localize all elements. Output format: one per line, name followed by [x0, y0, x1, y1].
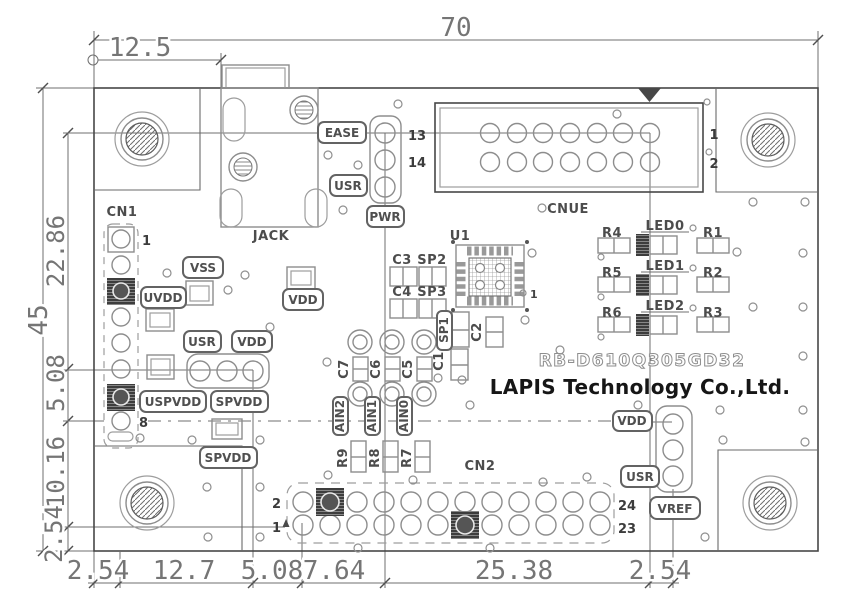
- cnue-pin13: 13: [408, 129, 426, 144]
- label-usr-right: USR: [626, 470, 654, 484]
- dim-bottom-seg2: 12.7: [153, 556, 216, 586]
- cn1-pin1: 1: [142, 234, 151, 249]
- board-model: RB-D610Q305GD32: [539, 351, 746, 371]
- cn2-label: CN2: [465, 459, 496, 474]
- cn2-pin2: 2: [272, 497, 281, 512]
- label-uspvdd: USPVDD: [145, 395, 201, 409]
- drawing-canvas: 70 12.5 45 22.86 5.08 10.16 2.54 2.54 12…: [0, 0, 850, 590]
- ref-r4: R4: [602, 226, 622, 241]
- label-vdd-b: VDD: [237, 335, 266, 349]
- u1-label: U1: [450, 229, 471, 244]
- cn2-pin1: 1: [272, 521, 281, 536]
- testpoint-circles: [348, 330, 436, 406]
- ref-r6: R6: [602, 306, 622, 321]
- dim-bottom-seg5: 25.38: [475, 556, 553, 586]
- label-sp1: SP1: [437, 317, 451, 343]
- ref-led0: LED0: [645, 219, 684, 234]
- label-spvdd-a: SPVDD: [216, 395, 263, 409]
- usr-vdd-header: [187, 354, 269, 388]
- label-usr-mid: USR: [188, 335, 216, 349]
- label-ain0: AIN0: [397, 400, 411, 432]
- cnue-pin14: 14: [408, 156, 426, 171]
- label-vdd-a: VDD: [288, 293, 317, 307]
- dim-left-seg4: 2.54: [40, 505, 68, 563]
- jack-label: JACK: [252, 229, 290, 244]
- cnue-pin1: 1: [709, 128, 718, 143]
- mounting-hole-top-left: [115, 112, 169, 166]
- label-spvdd-b: SPVDD: [205, 451, 252, 465]
- ref-r2: R2: [703, 266, 723, 281]
- ref-led1: LED1: [645, 259, 684, 274]
- ref-c5: C5: [401, 359, 416, 379]
- cn2-pin23: 23: [618, 522, 636, 537]
- dim-left-seg2: 5.08: [42, 354, 70, 412]
- dim-left-seg1: 22.86: [42, 215, 70, 287]
- label-pwr: PWR: [369, 210, 400, 224]
- pcb-dimension-drawing: 70 12.5 45 22.86 5.08 10.16 2.54 2.54 12…: [0, 0, 850, 590]
- ref-c3: C3: [392, 253, 412, 268]
- dim-bottom-seg3: 5.08: [241, 556, 304, 586]
- branding: RB-D610Q305GD32 LAPIS Technology Co.,Ltd…: [490, 351, 791, 399]
- dim-board-height: 45: [24, 304, 54, 335]
- ref-r3: R3: [703, 306, 723, 321]
- ref-r5: R5: [602, 266, 622, 281]
- ref-r9: R9: [336, 448, 351, 468]
- ref-sp2: SP2: [417, 253, 446, 268]
- connector-cnue: 13 14 1 2 CNUE: [408, 88, 719, 217]
- ref-c6: C6: [369, 359, 384, 379]
- label-usr-top: USR: [334, 179, 362, 193]
- cn1-label: CN1: [107, 205, 138, 220]
- label-uvdd: UVDD: [144, 291, 183, 305]
- ref-r8: R8: [368, 448, 383, 468]
- ref-c7: C7: [337, 359, 352, 379]
- u1-pin1: 1: [530, 288, 538, 301]
- ref-sp3: SP3: [417, 285, 446, 300]
- ref-c1: C1: [432, 351, 447, 371]
- dim-bottom-seg4: 7.64: [303, 556, 366, 586]
- cnue-pin2: 2: [709, 157, 718, 172]
- led-resistor-array: R4 LED0 R1 R5 LED1 R2 R6 LED2 R3: [598, 219, 729, 336]
- dim-bottom-seg1: 2.54: [67, 556, 130, 586]
- ref-c2: C2: [470, 322, 485, 342]
- cnue-label: CNUE: [547, 202, 589, 217]
- dim-left-seg3: 10.16: [42, 436, 70, 508]
- ref-c4: C4: [392, 285, 412, 300]
- ref-led2: LED2: [645, 299, 684, 314]
- label-ease: EASE: [325, 126, 359, 140]
- mounting-hole-bottom-left: [120, 476, 174, 530]
- pin1-triangle-marker: [638, 88, 661, 102]
- cn2-pin1-arrow: [283, 519, 290, 527]
- ref-r7: R7: [400, 448, 415, 468]
- label-vdd-right: VDD: [617, 414, 646, 428]
- label-ain2: AIN2: [333, 400, 347, 432]
- ic-u1: 1 U1: [450, 229, 538, 312]
- dim-board-width: 70: [440, 13, 471, 43]
- label-ain1: AIN1: [365, 400, 379, 432]
- cn1-pin8: 8: [139, 416, 148, 431]
- cn2-pin24: 24: [618, 499, 636, 514]
- ref-r1: R1: [703, 226, 723, 241]
- label-vss: VSS: [190, 261, 216, 275]
- company-name: LAPIS Technology Co.,Ltd.: [490, 375, 791, 399]
- label-vref: VREF: [658, 502, 693, 516]
- mounting-hole-top-right: [741, 113, 795, 167]
- mounting-hole-bottom-right: [743, 476, 797, 530]
- dim-usb-offset: 12.5: [109, 33, 172, 63]
- usb-jack: JACK: [220, 65, 327, 244]
- dim-bottom-seg6: 2.54: [629, 556, 692, 586]
